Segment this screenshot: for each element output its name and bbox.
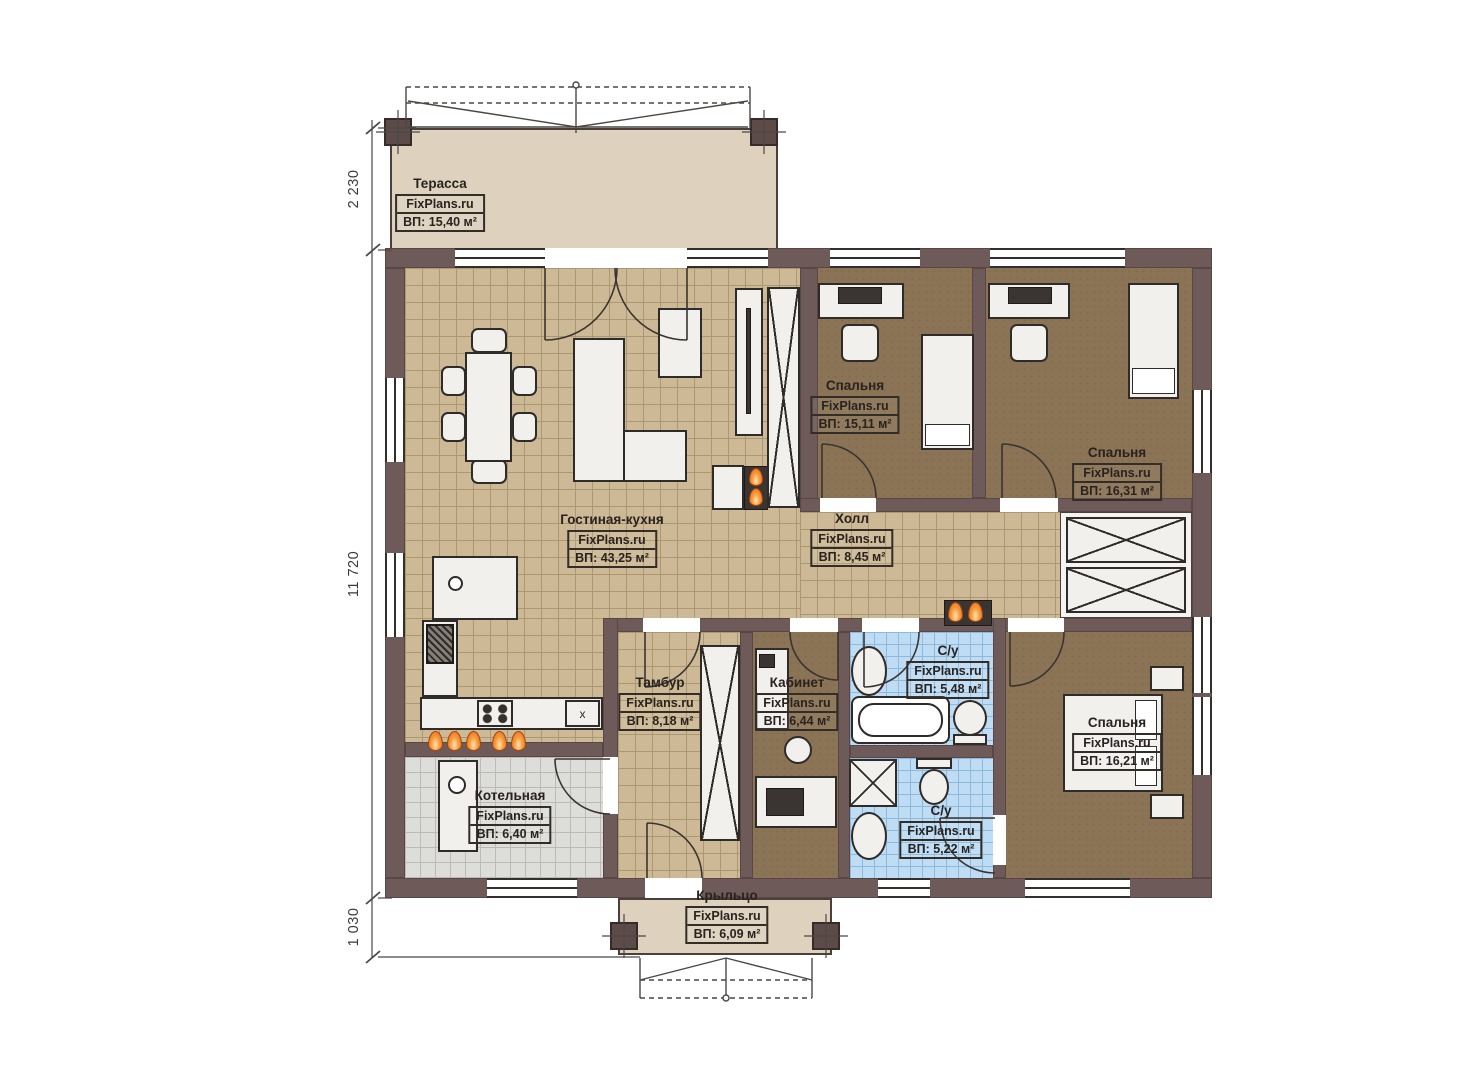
corner-post [610, 922, 638, 950]
nightstand [1150, 794, 1184, 819]
area-text: ВП: 6,09 м² [687, 924, 766, 942]
window [385, 378, 405, 462]
flame-icon [428, 731, 443, 751]
area-text: ВП: 43,25 м² [569, 548, 655, 566]
door-opening-bedroom1 [820, 498, 876, 512]
desk-monitor [838, 287, 882, 304]
window [878, 878, 930, 898]
dimension-label-house: 11 720 [346, 529, 364, 619]
wall-bath1-bath2 [850, 745, 993, 758]
wall-office-bath [838, 632, 850, 878]
area-text: ВП: 15,40 м² [397, 212, 483, 230]
bathtub-inner [858, 703, 943, 737]
wall-tambour-office [740, 632, 753, 878]
brand-text: FixPlans.ru [812, 398, 897, 414]
wardrobe [700, 645, 740, 841]
door-opening-bath1 [862, 618, 919, 632]
bathtub [851, 696, 950, 744]
flame-icon [447, 731, 462, 751]
flame-icon [968, 602, 983, 622]
dining-chair [471, 328, 507, 353]
dimension-label-porch: 1 030 [346, 882, 364, 972]
dining-chair [471, 459, 507, 484]
window [1192, 390, 1212, 473]
toilet-tank [953, 734, 987, 745]
area-text: ВП: 8,45 м² [812, 547, 891, 565]
brand-text: FixPlans.ru [1074, 735, 1160, 751]
room-label-bedroom2: Спальня FixPlans.ruВП: 16,31 м² [1072, 445, 1162, 501]
window [385, 553, 405, 637]
door-opening-bedroom2 [1000, 498, 1058, 512]
flame-icon [749, 488, 763, 506]
desk-monitor [1008, 287, 1052, 304]
room-label-bath2: С/у FixPlans.ruВП: 5,22 м² [899, 803, 982, 859]
window [487, 878, 577, 898]
terrace-pergola-symbol [406, 82, 750, 133]
flame-icon [511, 731, 526, 751]
boiler-dial [448, 776, 466, 794]
office-appliance [759, 654, 775, 668]
door-opening-bath2 [993, 815, 1006, 865]
area-text: ВП: 5,48 м² [908, 679, 987, 697]
room-label-office: Кабинет FixPlans.ruВП: 6,44 м² [755, 675, 838, 731]
flame-icon [948, 602, 963, 622]
room-label-bedroom3: Спальня FixPlans.ruВП: 16,21 м² [1072, 715, 1162, 771]
room-label-hall: Холл FixPlans.ruВП: 8,45 м² [810, 511, 893, 567]
area-text: ВП: 5,22 м² [901, 839, 980, 857]
dining-chair [512, 412, 537, 442]
room-label-tambour: Тамбур FixPlans.ruВП: 8,18 м² [618, 675, 701, 731]
flame-icon [492, 731, 507, 751]
wall-bedroom1-bedroom2 [972, 268, 986, 498]
brand-text: FixPlans.ru [812, 531, 891, 547]
fridge [426, 624, 454, 664]
area-text: ВП: 6,44 м² [757, 711, 836, 729]
door-opening-boiler [603, 757, 618, 814]
brand-text: FixPlans.ru [620, 695, 699, 711]
door-opening-office [790, 618, 838, 632]
dining-chair [512, 366, 537, 396]
brand-text: FixPlans.ru [901, 823, 980, 839]
window [687, 248, 768, 268]
brand-text: FixPlans.ru [687, 908, 766, 924]
fireplace-counter [712, 465, 744, 510]
kitchen-island [432, 556, 518, 620]
room-label-bedroom1: Спальня FixPlans.ruВП: 15,11 м² [810, 378, 899, 434]
dining-chair [441, 366, 466, 396]
counter-box-mark: x [580, 707, 586, 721]
counter-box: x [565, 700, 600, 727]
coffee-table [658, 308, 702, 378]
sink [851, 812, 887, 860]
bed-blanket [1132, 368, 1175, 394]
brand-text: FixPlans.ru [397, 196, 483, 212]
area-text: ВП: 6,40 м² [470, 824, 549, 842]
toilet [919, 769, 949, 805]
closet [1066, 567, 1186, 613]
toilet [953, 700, 987, 736]
plant [784, 736, 812, 764]
window [1192, 697, 1212, 775]
brand-text: FixPlans.ru [470, 808, 549, 824]
porch-steps-symbol [640, 958, 812, 1001]
wall-kitchen-tambour [603, 618, 618, 878]
area-text: ВП: 16,21 м² [1074, 751, 1160, 769]
window [990, 248, 1125, 268]
dining-table [465, 352, 512, 462]
brand-text: FixPlans.ru [908, 663, 987, 679]
floor-plan: x [0, 0, 1473, 1080]
sofa-chaise [623, 430, 687, 482]
toilet-tank [916, 758, 952, 769]
desk-chair [1010, 324, 1048, 362]
room-label-boiler: Котельная FixPlans.ruВП: 6,40 м² [468, 788, 551, 844]
room-label-bath1: С/у FixPlans.ruВП: 5,48 м² [906, 643, 989, 699]
shower [849, 759, 897, 807]
area-text: ВП: 15,11 м² [812, 414, 897, 432]
room-label-terrace: Терасса FixPlans.ruВП: 15,40 м² [395, 176, 485, 232]
corner-post [750, 118, 778, 146]
bed [1128, 283, 1179, 399]
corner-post [812, 922, 840, 950]
stove [477, 700, 513, 727]
sink-icon [448, 576, 463, 591]
room-label-living: Гостиная-кухня FixPlans.ruВП: 43,25 м² [560, 512, 663, 568]
sofa [573, 338, 625, 482]
desk-chair [841, 324, 879, 362]
window [1192, 617, 1212, 693]
brand-text: FixPlans.ru [757, 695, 836, 711]
window [830, 248, 920, 268]
sink [851, 646, 887, 696]
door-opening-terrace [545, 248, 687, 268]
door-opening-bedroom3 [1008, 618, 1064, 632]
tv-screen [746, 308, 751, 414]
area-text: ВП: 8,18 м² [620, 711, 699, 729]
room-label-porch: Крыльцо FixPlans.ruВП: 6,09 м² [685, 888, 768, 944]
area-text: ВП: 16,31 м² [1074, 481, 1160, 499]
bed [921, 334, 974, 450]
dimension-label-terrace: 2 230 [346, 144, 364, 234]
wardrobe [767, 287, 800, 508]
nightstand [1150, 666, 1184, 691]
flame-icon [466, 731, 481, 751]
dining-chair [441, 412, 466, 442]
bed-blanket [925, 424, 970, 446]
flame-icon [749, 468, 763, 486]
corner-post [384, 118, 412, 146]
wall-outer-right [1192, 268, 1212, 878]
window [1025, 878, 1130, 898]
door-opening-tambour [643, 618, 700, 632]
brand-text: FixPlans.ru [1074, 465, 1160, 481]
window [455, 248, 545, 268]
closet [1066, 517, 1186, 563]
printer [766, 788, 804, 816]
brand-text: FixPlans.ru [569, 532, 655, 548]
